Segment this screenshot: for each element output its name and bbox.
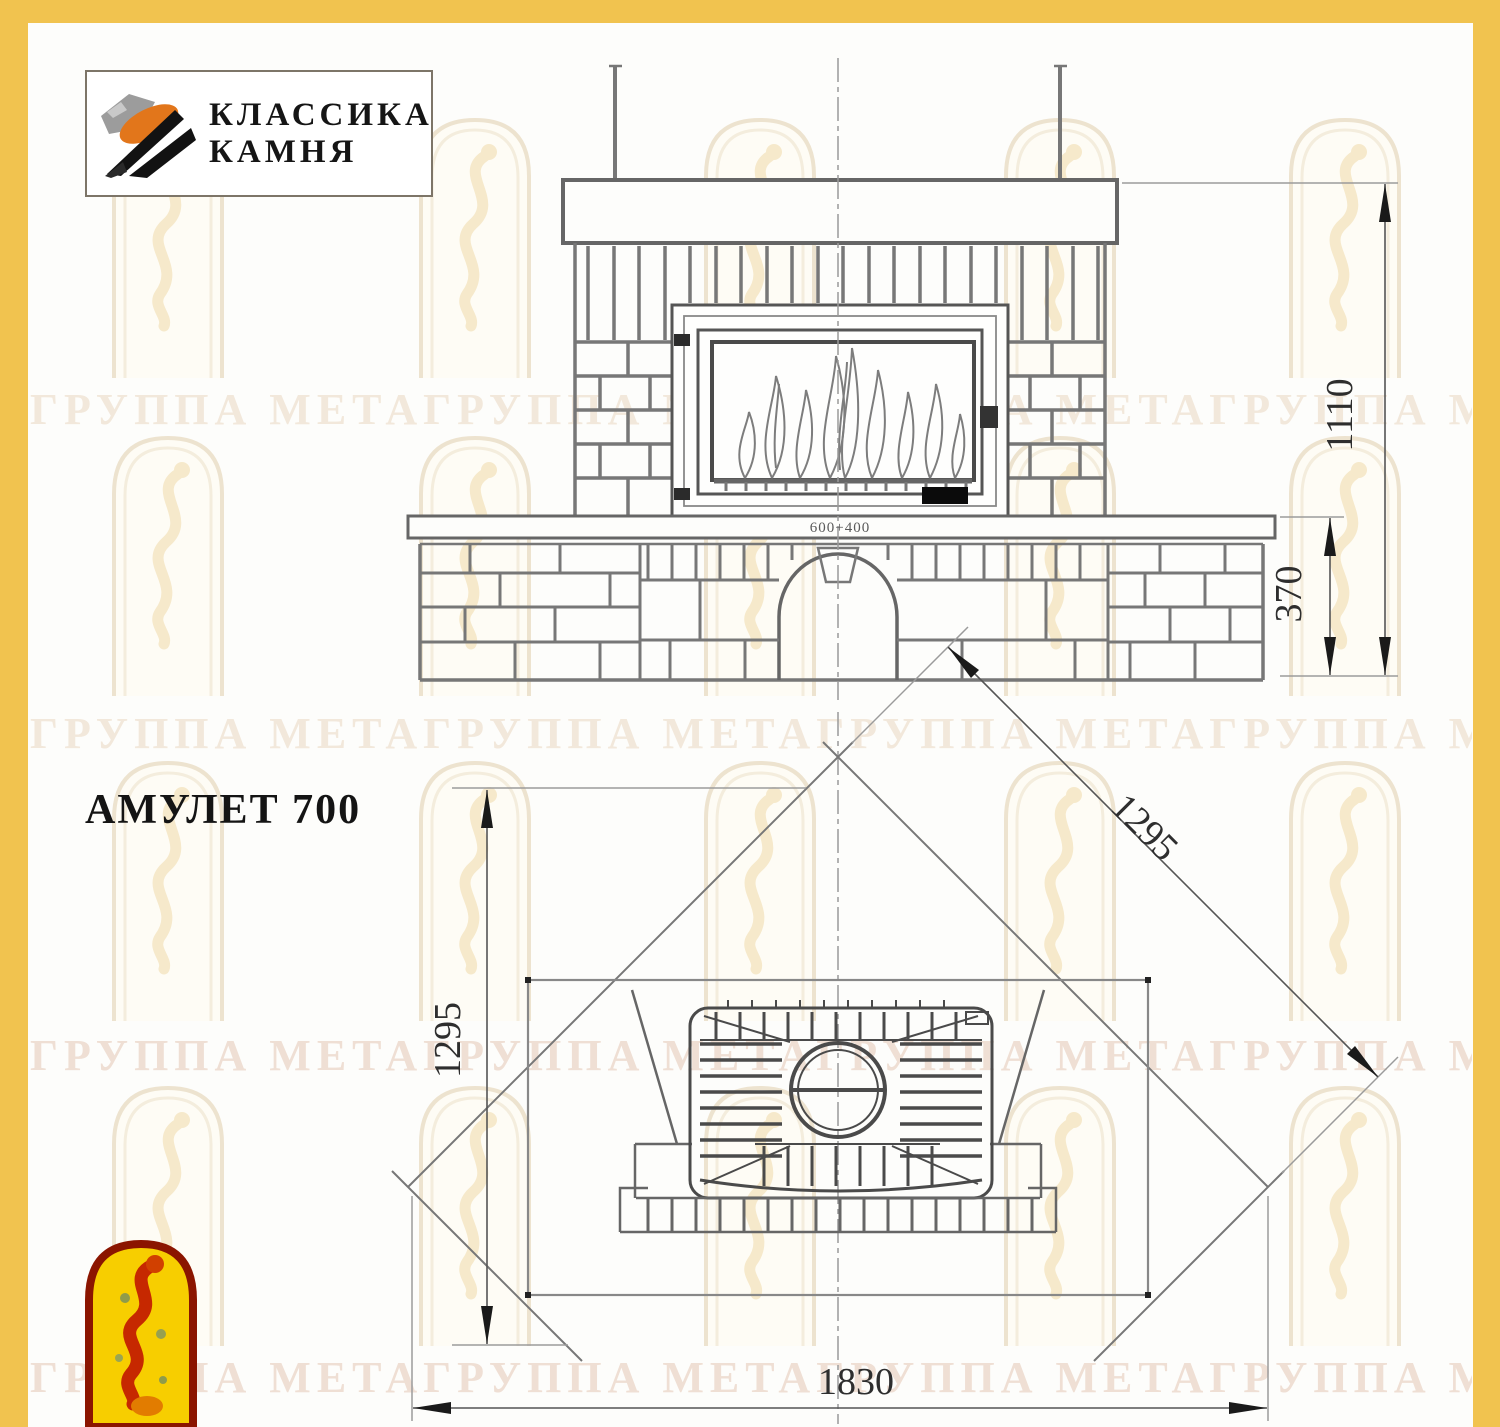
company-name-line2: КАМНЯ	[209, 134, 433, 171]
dim-plan-depth: 1295	[427, 1002, 469, 1078]
insert-plan	[690, 1000, 992, 1198]
right-brick-column	[1008, 342, 1105, 516]
firebox-insert	[672, 305, 1008, 538]
page-frame-right	[1473, 0, 1500, 1427]
salamander-emblem-icon	[85, 1238, 197, 1427]
door-hinge	[674, 334, 690, 346]
dim-bench-height: 370	[1268, 566, 1310, 623]
company-logo-icon	[97, 88, 201, 180]
company-name-line1: КЛАССИКА	[209, 97, 433, 134]
company-logo-text: КЛАССИКА КАМНЯ	[209, 97, 433, 171]
chimney-pipes	[609, 66, 1067, 180]
mantel-shelf	[563, 180, 1117, 243]
page-frame-left	[0, 0, 28, 1427]
dim-plan-diagonal: 1295	[1103, 786, 1186, 869]
dim-total-height: 1110	[1319, 378, 1361, 451]
page-frame-top	[0, 0, 1500, 23]
front-elevation	[408, 58, 1275, 700]
door-hinge	[674, 488, 690, 500]
left-brick-column	[575, 342, 672, 516]
fireplace-technical-drawing: 1110 370 1295 1295 1830 600+400	[0, 0, 1500, 1427]
door-latch	[980, 406, 998, 428]
model-title: АМУЛЕТ 700	[85, 786, 361, 834]
stone-base	[420, 544, 1263, 680]
company-logo: КЛАССИКА КАМНЯ	[85, 70, 433, 197]
dim-plan-width: 1830	[818, 1361, 894, 1403]
insert-size-label: 600+400	[810, 520, 870, 536]
door-handle	[922, 487, 968, 504]
